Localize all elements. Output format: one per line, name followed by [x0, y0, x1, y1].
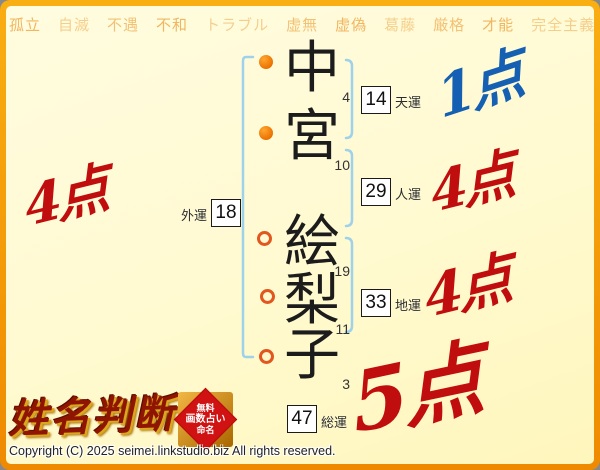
heaven-luck-label: 天運: [395, 92, 421, 111]
total-luck-value-box: 47: [287, 405, 317, 433]
name-char-5: 子 3: [282, 325, 342, 385]
total-luck-score: 5点: [348, 337, 483, 446]
total-luck-label: 総運: [321, 412, 347, 431]
person-luck-value-box: 29: [361, 178, 391, 206]
surname-marker-icon: [259, 126, 273, 140]
given-name-marker-icon: [260, 289, 275, 304]
name-char-glyph: 絵: [284, 210, 340, 273]
person-luck-label: 人運: [395, 184, 421, 203]
free-seal-stamp: 無料 画数占い 命名: [178, 392, 233, 447]
name-char-glyph: 子: [284, 323, 340, 386]
copyright-text: Copyright (C) 2025 seimei.linkstudio.biz…: [9, 444, 336, 458]
name-char-2: 宮 10: [282, 106, 342, 166]
heaven-luck-value-box: 14: [361, 86, 391, 114]
surname-marker-icon: [259, 55, 273, 69]
name-char-4: 梨 11: [282, 270, 342, 330]
name-char-1: 中 4: [282, 38, 342, 98]
stroke-count: 3: [342, 377, 350, 391]
name-char-3: 絵 19: [282, 212, 342, 272]
page-frame: 孤立自滅不遇不和トラブル虚無虚偽葛藤厳格才能完全主義知謀参謀開運勇気成功頭領剛健…: [0, 0, 600, 470]
name-char-glyph: 梨: [284, 268, 340, 331]
stroke-count: 10: [334, 158, 350, 172]
earth-luck-label: 地運: [395, 295, 421, 314]
stroke-count: 4: [342, 90, 350, 104]
given-name-marker-icon: [259, 349, 274, 364]
earth-luck-bracket: [346, 238, 352, 332]
name-char-glyph: 宮: [284, 104, 340, 167]
outer-luck-label: 外運: [161, 205, 207, 224]
earth-luck-value-box: 33: [361, 289, 391, 317]
stamp-line: 画数占い: [186, 414, 226, 426]
outer-luck-bracket: [243, 57, 253, 357]
result-canvas: 孤立自滅不遇不和トラブル虚無虚偽葛藤厳格才能完全主義知謀参謀開運勇気成功頭領剛健…: [6, 6, 594, 464]
name-char-glyph: 中: [284, 36, 340, 99]
outer-luck-value-box: 18: [211, 199, 241, 227]
stamp-line: 無料: [196, 403, 214, 413]
given-name-marker-icon: [257, 231, 272, 246]
site-logo[interactable]: 姓名判断: [7, 381, 177, 445]
stamp-line: 命名: [196, 425, 214, 435]
